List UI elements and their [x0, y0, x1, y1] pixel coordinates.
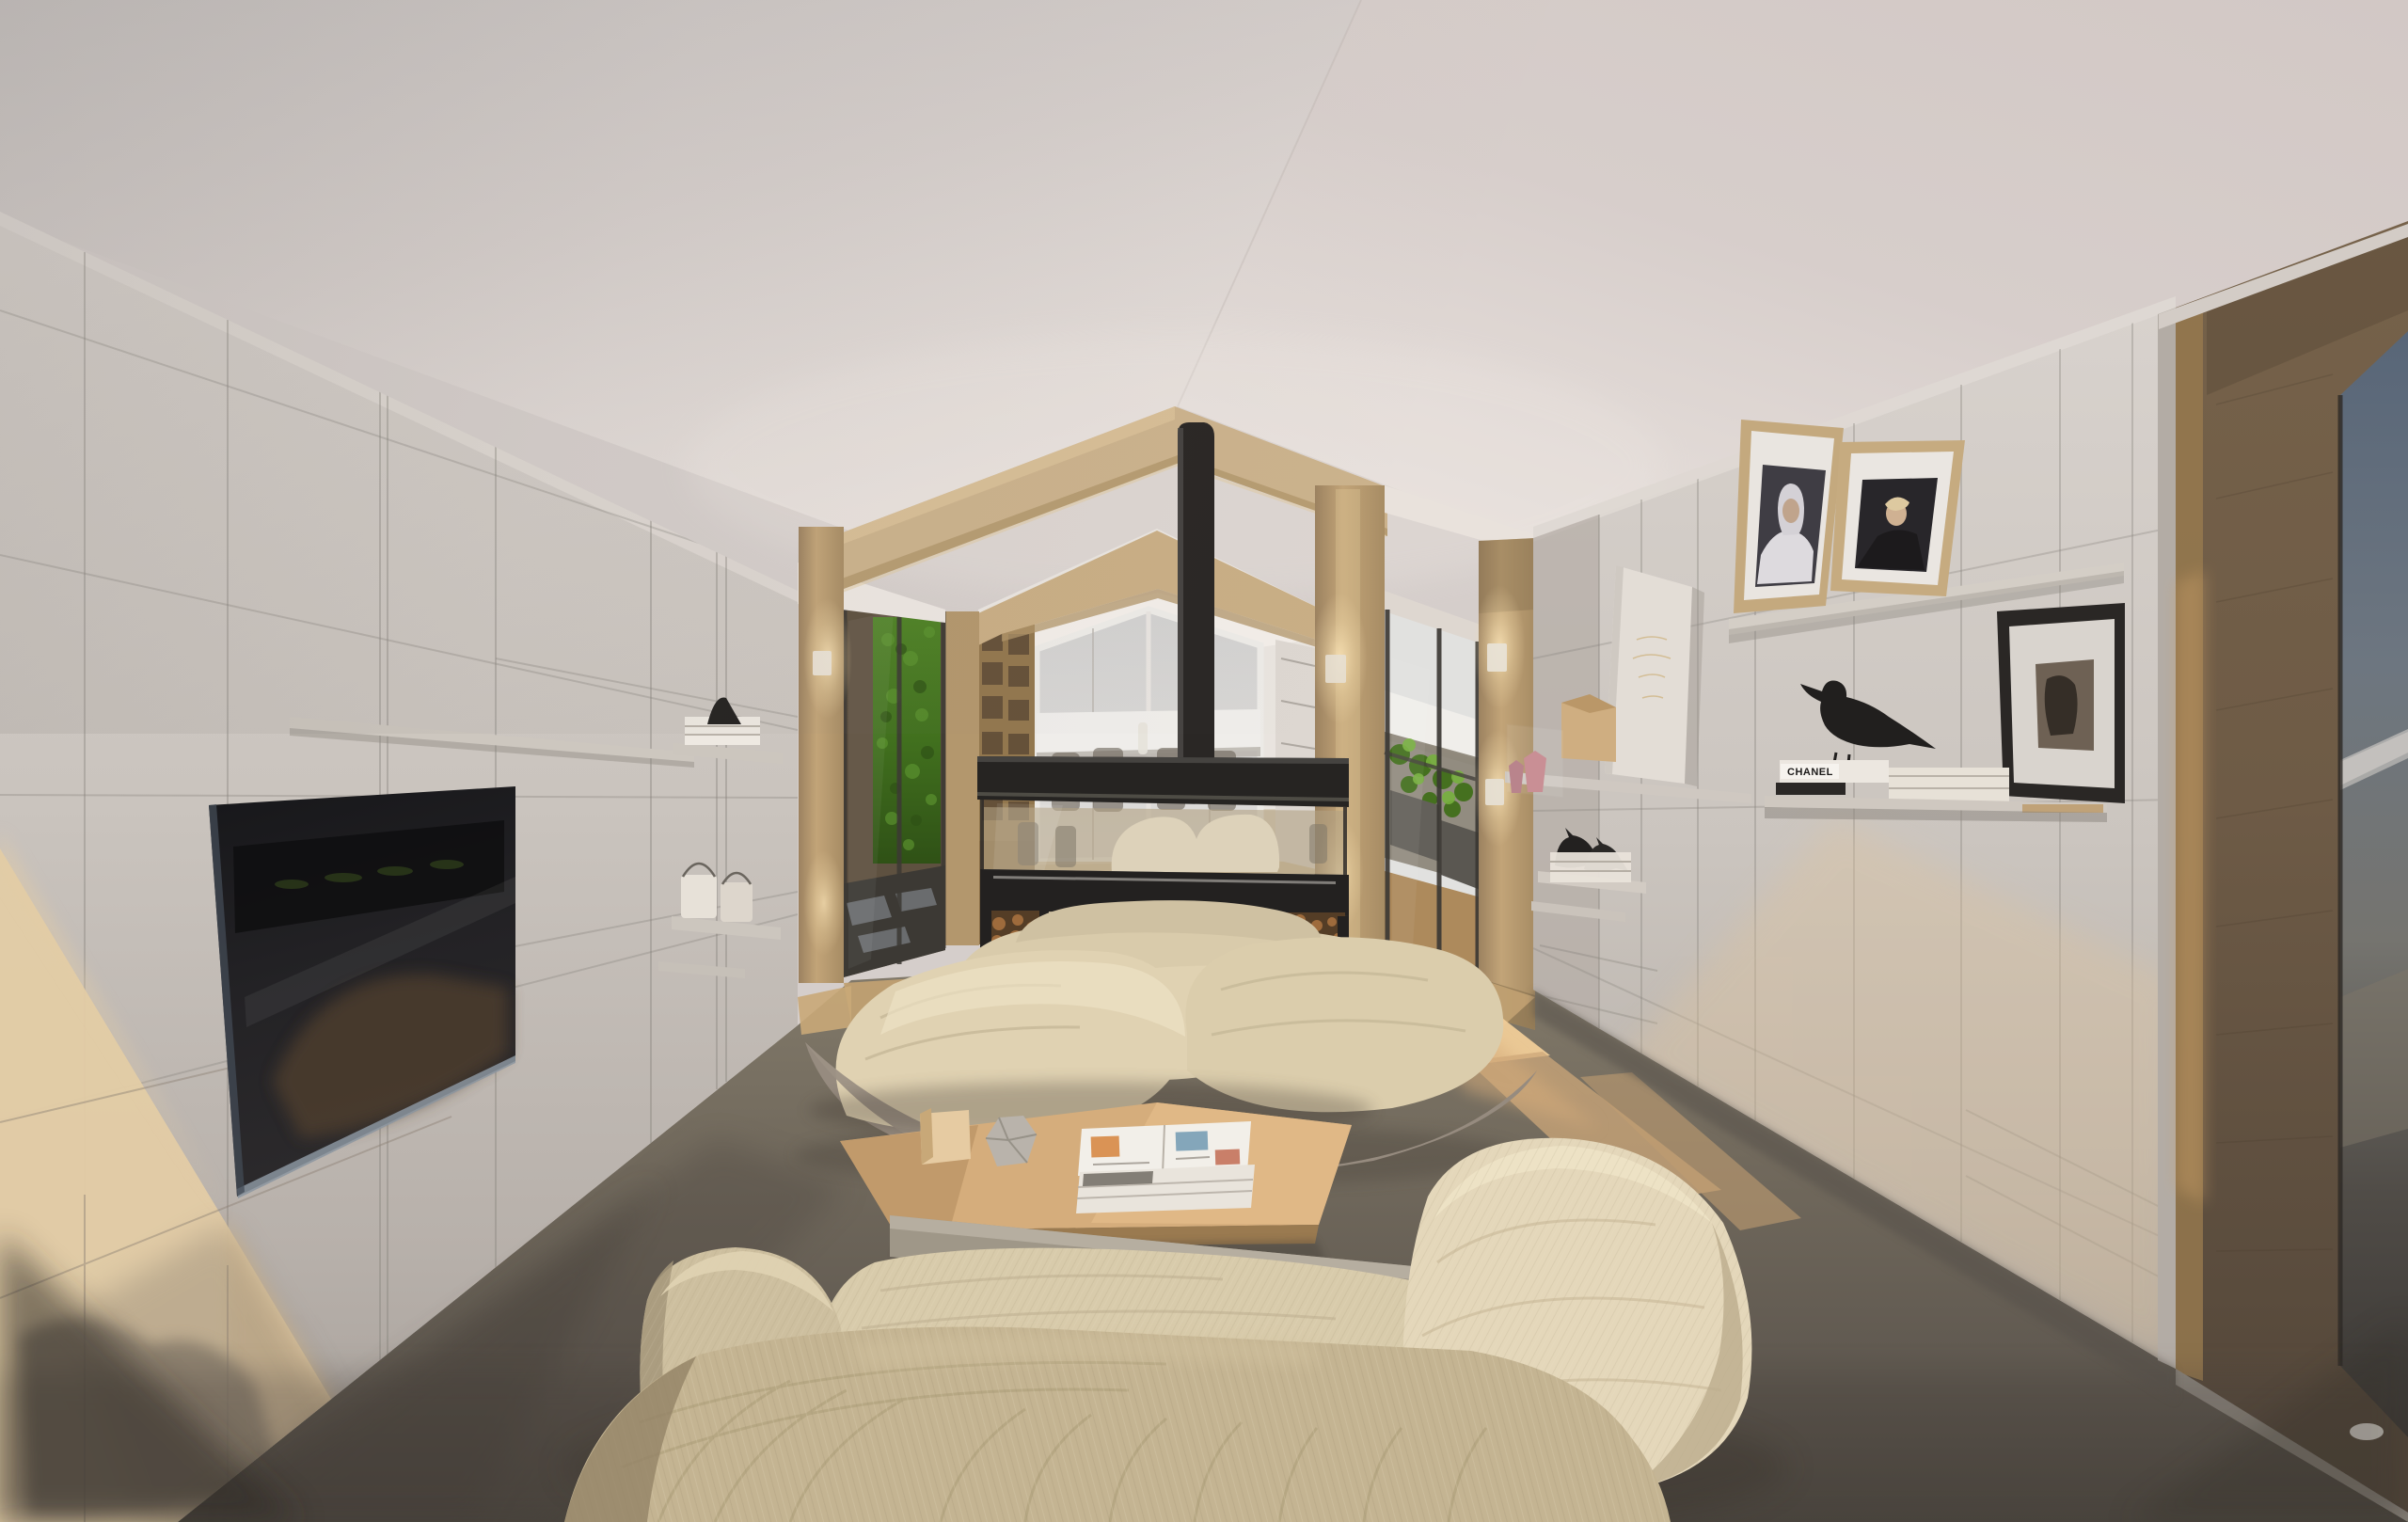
- svg-text:CHANEL: CHANEL: [1787, 767, 1833, 778]
